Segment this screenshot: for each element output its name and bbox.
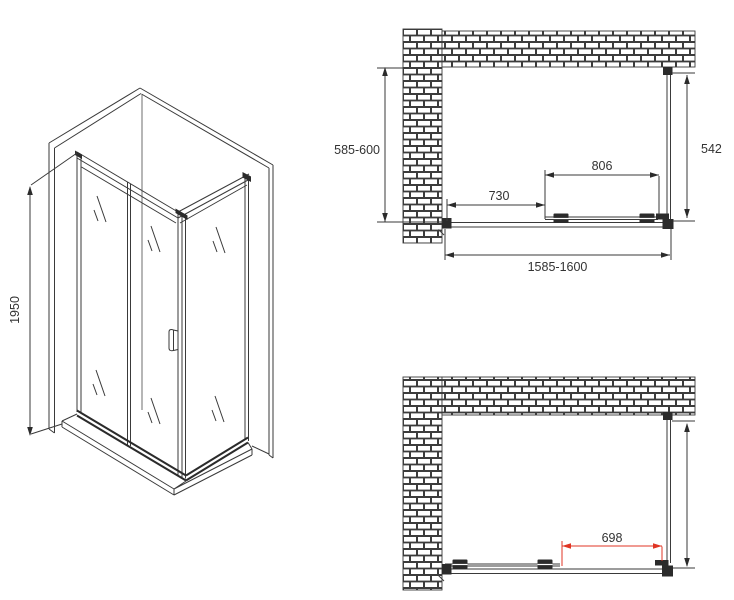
total-width-dimension-label: 1585-1600 [528,260,588,274]
height-dimension-label: 1950 [8,296,22,324]
fixed-panel-dimension-label: 730 [489,189,510,203]
page-background [0,0,734,600]
door-width-dimension-label: 806 [592,159,613,173]
wall-hatch-vertical [403,29,442,243]
depth-dimension-label: 585-600 [334,143,380,157]
wall-hatch-horizontal [442,377,695,415]
corner-block [663,219,674,229]
fixed-panel-bracket [656,214,669,220]
side-panel-dimension-label: 542 [701,142,722,156]
wall-hatch-vertical [403,377,442,590]
corner-block [662,566,673,577]
wall-hatch-horizontal [442,31,695,67]
technical-drawing-page: 1950 585-600 [0,0,734,600]
opening-dimension-label: 698 [602,531,623,545]
technical-drawing-canvas: 1950 585-600 [0,0,734,600]
left-wall-bracket [442,564,452,575]
wall-profile-cap [663,67,673,75]
wall-profile-cap [663,412,673,420]
